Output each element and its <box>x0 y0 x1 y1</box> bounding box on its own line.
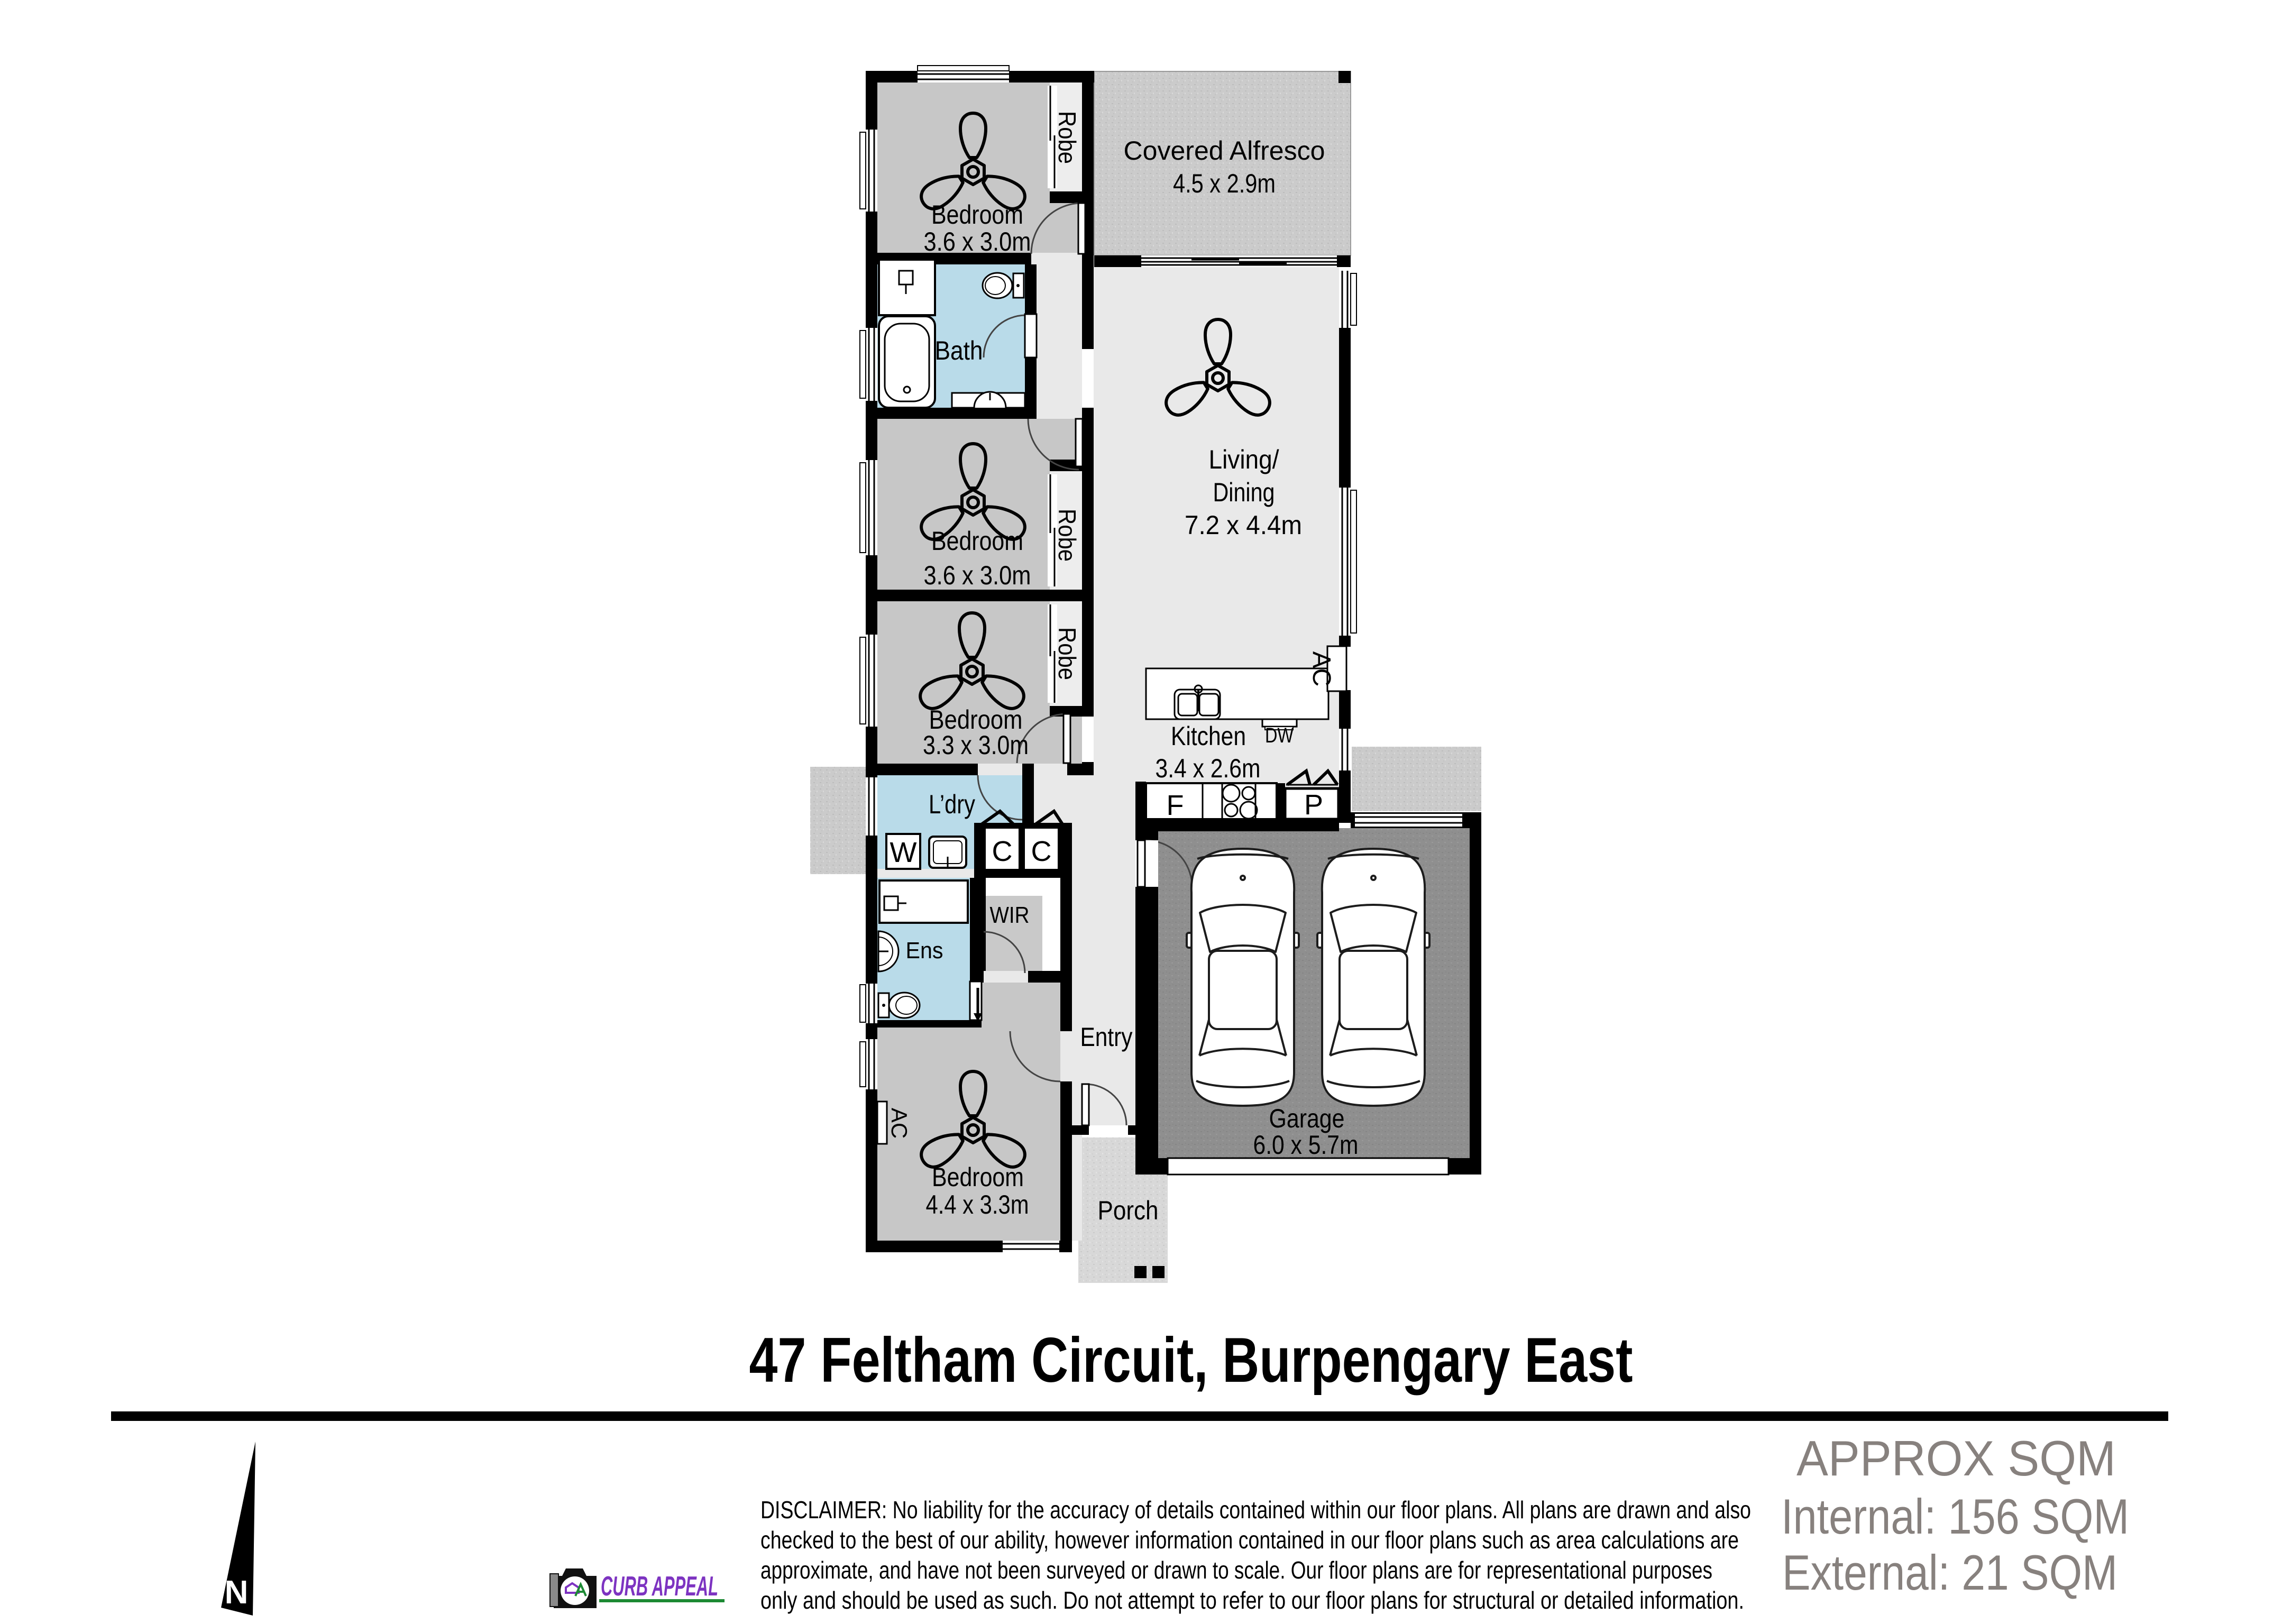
svg-text:only and should be used as suc: only and should be used as such. Do not … <box>760 1586 1744 1614</box>
svg-text:C: C <box>992 836 1013 867</box>
svg-text:Ens: Ens <box>906 938 943 964</box>
svg-text:3.4 x 2.6m: 3.4 x 2.6m <box>1156 754 1261 783</box>
svg-text:WIR: WIR <box>990 902 1030 928</box>
svg-text:Covered Alfresco: Covered Alfresco <box>1124 136 1325 166</box>
svg-text:DISCLAIMER: No liability for t: DISCLAIMER: No liability for the accurac… <box>760 1496 1751 1524</box>
svg-text:3.3 x 3.0m: 3.3 x 3.0m <box>923 730 1029 760</box>
svg-text:N: N <box>225 1574 249 1611</box>
svg-text:Garage: Garage <box>1269 1104 1345 1133</box>
svg-text:Living/: Living/ <box>1209 445 1279 474</box>
svg-text:F: F <box>1167 790 1184 821</box>
svg-text:W: W <box>890 837 917 868</box>
svg-text:Robe: Robe <box>1053 111 1081 164</box>
svg-text:3.6 x 3.0m: 3.6 x 3.0m <box>924 561 1031 590</box>
svg-text:Porch: Porch <box>1098 1196 1159 1225</box>
svg-text:checked to the best of our abi: checked to the best of our ability, howe… <box>760 1526 1739 1554</box>
svg-text:APPROX SQM: APPROX SQM <box>1796 1430 2116 1486</box>
svg-text:P: P <box>1304 789 1323 821</box>
svg-text:6.0 x 5.7m: 6.0 x 5.7m <box>1253 1130 1359 1160</box>
svg-text:Robe: Robe <box>1053 627 1081 680</box>
svg-text:Robe: Robe <box>1053 509 1081 562</box>
svg-text:Bedroom: Bedroom <box>931 200 1023 230</box>
svg-text:Bedroom: Bedroom <box>932 1162 1024 1192</box>
svg-text:AC: AC <box>1307 652 1335 687</box>
svg-text:Dining: Dining <box>1213 478 1275 507</box>
svg-text:3.6 x 3.0m: 3.6 x 3.0m <box>924 227 1031 256</box>
svg-text:DW: DW <box>1265 724 1294 747</box>
svg-text:47 Feltham Circuit, Burpengary: 47 Feltham Circuit, Burpengary East <box>749 1325 1633 1396</box>
svg-text:4.4 x 3.3m: 4.4 x 3.3m <box>926 1190 1029 1219</box>
svg-text:C: C <box>1031 836 1052 867</box>
svg-text:External: 21 SQM: External: 21 SQM <box>1782 1545 2117 1600</box>
svg-text:Bedroom: Bedroom <box>931 526 1023 556</box>
svg-text:Bath: Bath <box>935 336 983 365</box>
svg-text:approximate, and have not been: approximate, and have not been surveyed … <box>760 1556 1712 1584</box>
svg-text:AC: AC <box>887 1108 912 1139</box>
svg-text:Internal: 156 SQM: Internal: 156 SQM <box>1781 1489 2129 1544</box>
svg-text:CURB APPEAL: CURB APPEAL <box>601 1571 718 1602</box>
svg-text:7.2 x 4.4m: 7.2 x 4.4m <box>1185 510 1302 540</box>
svg-text:Entry: Entry <box>1080 1022 1133 1052</box>
svg-text:4.5 x 2.9m: 4.5 x 2.9m <box>1173 169 1276 198</box>
svg-text:Kitchen: Kitchen <box>1171 721 1246 751</box>
svg-text:L’dry: L’dry <box>929 790 975 819</box>
